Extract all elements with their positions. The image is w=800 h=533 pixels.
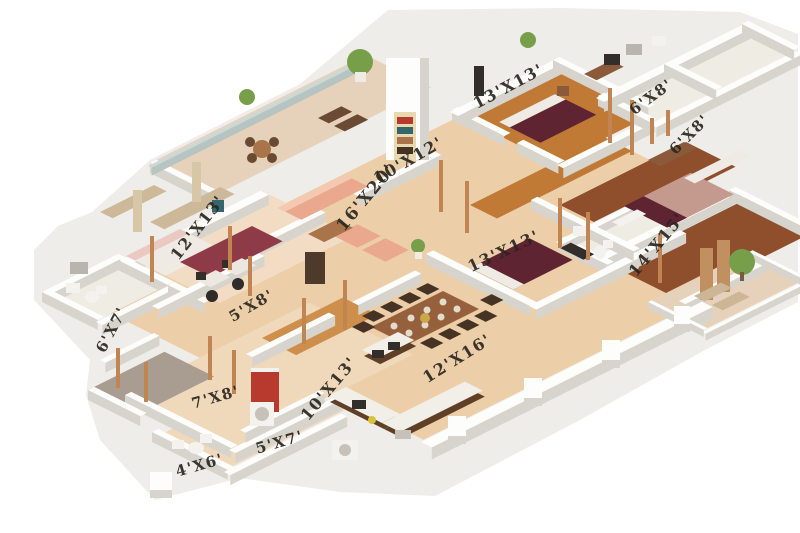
wood-pillar	[650, 118, 654, 144]
toilet-bottom	[188, 442, 204, 454]
plate	[408, 315, 415, 322]
kitchen-sink	[395, 430, 411, 439]
bookshelf-books	[397, 117, 413, 124]
wood-pillar	[302, 298, 306, 344]
wood-pillar	[608, 88, 612, 143]
wall-pillar	[448, 436, 466, 444]
plate	[391, 323, 398, 330]
plant	[520, 32, 536, 48]
wood-pillar	[150, 236, 154, 282]
wood-pillar	[558, 198, 562, 248]
wood-pillar	[586, 212, 590, 260]
window	[70, 262, 88, 274]
bookshelf-books	[397, 127, 413, 134]
bath-sink	[66, 283, 80, 293]
plate	[454, 306, 461, 313]
wall-pillar	[524, 398, 542, 406]
plate	[438, 314, 445, 321]
plant-pot	[355, 72, 366, 82]
wall-pillar	[150, 490, 172, 498]
floor-plan-3d: 13'X13'6'X8'6'X8'10'X12'16'X20'12'X13'14…	[0, 0, 800, 533]
office-chair	[206, 290, 218, 302]
wood-pillar	[465, 181, 469, 233]
tree-trunk	[740, 272, 744, 281]
terrace-chair	[245, 137, 255, 147]
wood-pillar	[144, 362, 148, 402]
appliance	[388, 342, 400, 350]
bath-sink	[172, 440, 184, 449]
appliance	[372, 350, 384, 358]
wood-pillar	[208, 336, 212, 380]
wood-pillar	[343, 280, 347, 330]
wood-pillar	[666, 110, 670, 136]
wall-pillar	[602, 360, 620, 368]
closet-fixture	[652, 36, 666, 46]
terrace-chair	[267, 153, 277, 163]
wood-pillar	[248, 256, 252, 296]
plate	[440, 299, 447, 306]
terrace-chair	[247, 153, 257, 163]
washer-door	[255, 407, 269, 421]
curtain	[192, 162, 201, 202]
stove	[352, 400, 366, 409]
closet-fixture	[626, 44, 642, 55]
toilet-tank	[603, 240, 613, 248]
bookshelf-books	[397, 137, 413, 144]
media-cabinet	[305, 252, 325, 284]
plate	[424, 307, 431, 314]
monitor	[196, 272, 206, 280]
wood-pillar	[228, 226, 232, 270]
centerpiece	[420, 313, 430, 323]
plant	[411, 239, 425, 253]
floor-plan-image: 13'X13'6'X8'6'X8'10'X12'16'X20'12'X13'14…	[0, 0, 800, 533]
closet-fixture	[604, 54, 620, 65]
wood-pillar	[439, 160, 443, 212]
wall-pillar	[674, 324, 690, 332]
balcony-tree	[729, 249, 755, 275]
plant	[347, 49, 373, 75]
washer-door	[339, 444, 351, 456]
plant	[239, 89, 255, 105]
wood-pillar	[116, 348, 120, 388]
flowers	[368, 416, 376, 424]
plate	[406, 330, 413, 337]
bath-sink	[573, 226, 587, 236]
terrace-chair	[269, 137, 279, 147]
curtain	[133, 190, 142, 232]
nightstand	[557, 86, 569, 96]
plant-pot	[415, 252, 422, 259]
toilet-tank	[96, 286, 107, 294]
office-chair	[232, 278, 244, 290]
toilet-tank	[200, 434, 212, 443]
